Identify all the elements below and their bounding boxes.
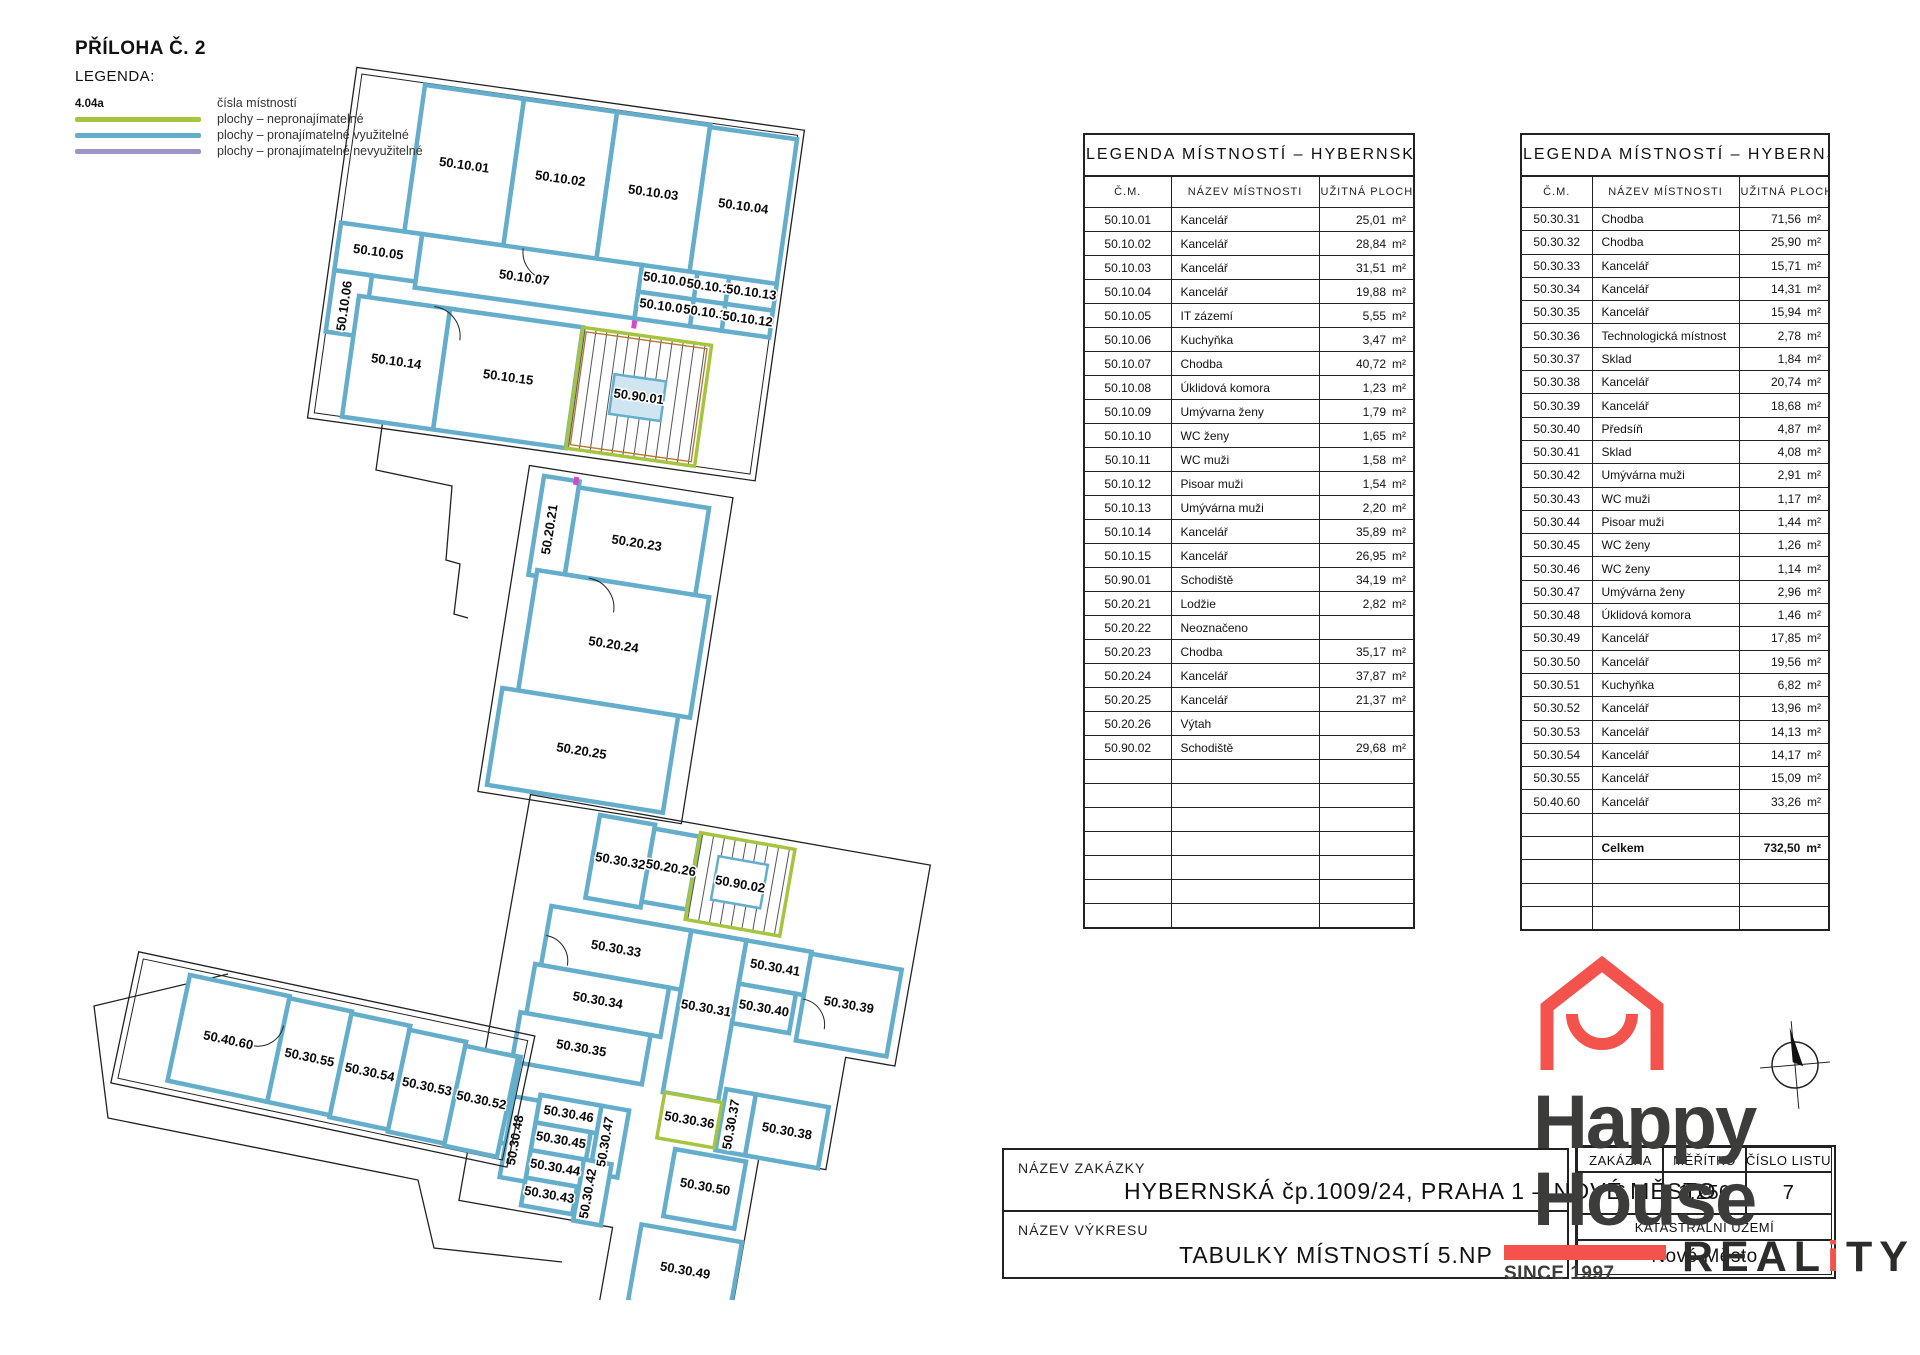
room-number-cell: [1084, 784, 1171, 808]
room-number-cell: 50.30.31: [1521, 208, 1592, 231]
room-area-cell: 14,17 m²: [1739, 743, 1829, 766]
room-area-cell: 19,88 m²: [1319, 280, 1414, 304]
sheet-number-value: 7: [1745, 1171, 1832, 1215]
room-number-cell: 50.30.51: [1521, 673, 1592, 696]
room-number-cell: 50.10.01: [1084, 208, 1171, 232]
room-number-cell: 50.10.11: [1084, 448, 1171, 472]
room-name-cell: Schodiště: [1171, 568, 1319, 592]
room-area-cell: [1739, 883, 1829, 906]
table-row: 50.10.15Kancelář26,95 m²: [1084, 544, 1414, 568]
room-area-cell: 1,84 m²: [1739, 347, 1829, 370]
room-number-cell: [1084, 760, 1171, 784]
table-row: [1521, 906, 1829, 930]
room-number-cell: [1084, 880, 1171, 904]
table-row: 50.30.40Předsíň4,87 m²: [1521, 417, 1829, 440]
room-area-cell: 13,96 m²: [1739, 697, 1829, 720]
room-area-cell: 28,84 m²: [1319, 232, 1414, 256]
room-number-cell: [1084, 832, 1171, 856]
room-area-cell: 71,56 m²: [1739, 208, 1829, 231]
room-area-cell: 35,89 m²: [1319, 520, 1414, 544]
table-row: [1084, 760, 1414, 784]
logo-reality-i: i: [1827, 1233, 1846, 1281]
north-compass: [1750, 1015, 1840, 1115]
room-name-cell: [1592, 906, 1739, 930]
room-number-cell: 50.30.33: [1521, 254, 1592, 277]
room-name-cell: WC muži: [1592, 487, 1739, 510]
table-row: 50.30.38Kancelář20,74 m²: [1521, 371, 1829, 394]
room-name-cell: Úklidová komora: [1592, 604, 1739, 627]
room-name-cell: Umývarna ženy: [1171, 400, 1319, 424]
logo-reality: REALiTY: [1682, 1233, 1915, 1282]
room-number-cell: 50.30.48: [1521, 604, 1592, 627]
room-area-cell: 25,90 m²: [1739, 231, 1829, 254]
room-number-cell: 50.10.03: [1084, 256, 1171, 280]
table-row: [1521, 813, 1829, 836]
room-name-cell: Kancelář: [1592, 720, 1739, 743]
table-row: 50.10.10WC ženy1,65 m²: [1084, 424, 1414, 448]
room-name-cell: Kancelář: [1171, 208, 1319, 232]
room-area-cell: [1319, 832, 1414, 856]
room-number-cell: 50.30.49: [1521, 627, 1592, 650]
room-name-cell: Technologická místnost: [1592, 324, 1739, 347]
table-row: 50.10.03Kancelář31,51 m²: [1084, 256, 1414, 280]
table-row: 50.10.01Kancelář25,01 m²: [1084, 208, 1414, 232]
room-area-cell: 1,65 m²: [1319, 424, 1414, 448]
drawing-name: TABULKY MÍSTNOSTÍ 5.NP: [1179, 1242, 1493, 1269]
room-name-cell: [1171, 856, 1319, 880]
room-area-cell: 6,82 m²: [1739, 673, 1829, 696]
room-area-cell: [1739, 860, 1829, 883]
room-number-cell: 50.30.46: [1521, 557, 1592, 580]
table-row: 50.30.41Sklad4,08 m²: [1521, 440, 1829, 463]
room-number-cell: 50.30.38: [1521, 371, 1592, 394]
room-area-cell: 1,58 m²: [1319, 448, 1414, 472]
room-area-cell: 18,68 m²: [1739, 394, 1829, 417]
room-name-cell: Kancelář: [1592, 627, 1739, 650]
room-name-cell: Kancelář: [1592, 394, 1739, 417]
divider: [1004, 1210, 1567, 1212]
table-row: 50.30.55Kancelář15,09 m²: [1521, 767, 1829, 790]
room-area-cell: [1319, 808, 1414, 832]
room-number-cell: 50.30.36: [1521, 324, 1592, 347]
table-row: 50.30.31Chodba71,56 m²: [1521, 208, 1829, 231]
column-header: NÁZEV MÍSTNOSTI: [1592, 176, 1739, 208]
room-table-2: LEGENDA MÍSTNOSTÍ – HYBERNSKÁČ.M.NÁZEV M…: [1520, 133, 1830, 931]
room-number-cell: 50.10.10: [1084, 424, 1171, 448]
column-header: Č.M.: [1521, 176, 1592, 208]
room-area-cell: 19,56 m²: [1739, 650, 1829, 673]
table-row: 50.30.35Kancelář15,94 m²: [1521, 301, 1829, 324]
room-area-cell: 20,74 m²: [1739, 371, 1829, 394]
room-number-cell: 50.10.15: [1084, 544, 1171, 568]
room-area-cell: 37,87 m²: [1319, 664, 1414, 688]
room-name-cell: Kancelář: [1171, 256, 1319, 280]
table-row: 50.10.02Kancelář28,84 m²: [1084, 232, 1414, 256]
room-name-cell: Kancelář: [1592, 790, 1739, 813]
room-number-cell: 50.10.08: [1084, 376, 1171, 400]
table-row: 50.30.33Kancelář15,71 m²: [1521, 254, 1829, 277]
room-name-cell: Kancelář: [1171, 544, 1319, 568]
room-area-cell: 17,85 m²: [1739, 627, 1829, 650]
room-area-cell: [1319, 760, 1414, 784]
order-name-label: NÁZEV ZAKÁZKY: [1018, 1160, 1145, 1176]
table-row: 50.30.52Kancelář13,96 m²: [1521, 697, 1829, 720]
room-name-cell: Kancelář: [1592, 767, 1739, 790]
room-name-cell: Kancelář: [1171, 232, 1319, 256]
marker: [631, 320, 637, 329]
room-name-cell: [1171, 784, 1319, 808]
room-number-cell: 50.30.41: [1521, 440, 1592, 463]
table-row: 50.30.49Kancelář17,85 m²: [1521, 627, 1829, 650]
room-number-cell: 50.10.02: [1084, 232, 1171, 256]
legend-item-label: plochy – pronajímatelné nevyužitelné: [217, 144, 423, 158]
legend-color-line: [75, 133, 201, 138]
table-row: 50.10.12Pisoar muži1,54 m²: [1084, 472, 1414, 496]
room-area-cell: 33,26 m²: [1739, 790, 1829, 813]
room-table-1: LEGENDA MÍSTNOSTÍ – HYBERNSKÁČ.M.NÁZEV M…: [1083, 133, 1415, 929]
room-name-cell: [1592, 860, 1739, 883]
room-name-cell: Neoznačeno: [1171, 616, 1319, 640]
compass-icon: [1756, 1018, 1833, 1112]
room-name-cell: Chodba: [1592, 231, 1739, 254]
room-name-cell: Kancelář: [1171, 280, 1319, 304]
table-row: 50.30.50Kancelář19,56 m²: [1521, 650, 1829, 673]
room-area-cell: 732,50 m²: [1739, 837, 1829, 860]
table-row: [1084, 784, 1414, 808]
table-title: LEGENDA MÍSTNOSTÍ – HYBERNSKÁ: [1521, 134, 1829, 176]
room-area-cell: 25,01 m²: [1319, 208, 1414, 232]
drawing-name-label: NÁZEV VÝKRESU: [1018, 1222, 1148, 1238]
room-name-cell: [1171, 808, 1319, 832]
legend-item: plochy – nepronajímatelné: [75, 111, 423, 127]
room-name-cell: Schodiště: [1171, 736, 1319, 760]
legend-item-label: plochy – nepronajímatelné: [217, 112, 364, 126]
room-name-cell: Kancelář: [1592, 254, 1739, 277]
table-row: 50.30.44Pisoar muži1,44 m²: [1521, 510, 1829, 533]
table-row: 50.30.48Úklidová komora1,46 m²: [1521, 604, 1829, 627]
room-number-cell: 50.30.47: [1521, 580, 1592, 603]
room-name-cell: Umývárna ženy: [1592, 580, 1739, 603]
legend-sample-number: 4.04a: [75, 96, 201, 110]
room-area-cell: [1739, 906, 1829, 930]
room-name-cell: Kancelář: [1171, 520, 1319, 544]
room-name-cell: Kancelář: [1171, 664, 1319, 688]
table-row: [1084, 856, 1414, 880]
room-number-cell: 50.30.43: [1521, 487, 1592, 510]
table-row: [1084, 904, 1414, 929]
room-name-cell: Kancelář: [1592, 371, 1739, 394]
logo-reality-ty: TY: [1846, 1233, 1915, 1281]
room-area-cell: 5,55 m²: [1319, 304, 1414, 328]
room-area-cell: [1319, 904, 1414, 929]
table-row: 50.90.02Schodiště29,68 m²: [1084, 736, 1414, 760]
room-number-cell: 50.30.50: [1521, 650, 1592, 673]
attachment-title: PŘÍLOHA Č. 2: [75, 38, 423, 60]
room-number-cell: 50.90.01: [1084, 568, 1171, 592]
room-name-cell: WC ženy: [1592, 557, 1739, 580]
room-area-cell: 15,09 m²: [1739, 767, 1829, 790]
room-name-cell: Kancelář: [1171, 688, 1319, 712]
room-area-cell: 1,17 m²: [1739, 487, 1829, 510]
logo-word-happy: Happy: [1533, 1085, 1755, 1161]
room-name-cell: Kancelář: [1592, 743, 1739, 766]
table-row: [1521, 860, 1829, 883]
room-number-cell: 50.10.09: [1084, 400, 1171, 424]
table-row: 50.30.54Kancelář14,17 m²: [1521, 743, 1829, 766]
room-name-cell: Lodžie: [1171, 592, 1319, 616]
room-name-cell: Sklad: [1592, 347, 1739, 370]
room-number-cell: [1084, 808, 1171, 832]
table-row: 50.90.01Schodiště34,19 m²: [1084, 568, 1414, 592]
happy-house-logo-icon: [1535, 950, 1670, 1075]
logo-reality-real: REAL: [1682, 1233, 1827, 1281]
table-row: 50.30.47Umývárna ženy2,96 m²: [1521, 580, 1829, 603]
table-row: 50.20.24Kancelář37,87 m²: [1084, 664, 1414, 688]
room-area-cell: 35,17 m²: [1319, 640, 1414, 664]
room-number-cell: 50.20.22: [1084, 616, 1171, 640]
room-area-cell: 34,19 m²: [1319, 568, 1414, 592]
room-name-cell: Chodba: [1592, 208, 1739, 231]
room-name-cell: WC ženy: [1592, 534, 1739, 557]
room-area-cell: 1,79 m²: [1319, 400, 1414, 424]
room-name-cell: Kancelář: [1592, 650, 1739, 673]
room-area-cell: [1319, 880, 1414, 904]
room-area-cell: [1319, 784, 1414, 808]
room-number-cell: 50.20.24: [1084, 664, 1171, 688]
room-number-cell: 50.90.02: [1084, 736, 1171, 760]
legend-title: LEGENDA:: [75, 68, 423, 85]
table-row: 50.30.45WC ženy1,26 m²: [1521, 534, 1829, 557]
table-row: 50.30.51Kuchyňka6,82 m²: [1521, 673, 1829, 696]
legend: PŘÍLOHA Č. 2 LEGENDA: 4.04ačísla místnos…: [75, 38, 423, 159]
legend-items: 4.04ačísla místnostíplochy – nepronajíma…: [75, 95, 423, 159]
table-row: 50.20.22Neoznačeno: [1084, 616, 1414, 640]
room-number-cell: 50.10.14: [1084, 520, 1171, 544]
room-area-cell: 2,78 m²: [1739, 324, 1829, 347]
room-area-cell: 1,44 m²: [1739, 510, 1829, 533]
room-name-cell: [1592, 813, 1739, 836]
room-number-cell: 50.10.12: [1084, 472, 1171, 496]
legend-color-line: [75, 117, 201, 122]
room-area-cell: 31,51 m²: [1319, 256, 1414, 280]
room-area-cell: 1,46 m²: [1739, 604, 1829, 627]
room-area-cell: 21,37 m²: [1319, 688, 1414, 712]
room-number-cell: [1521, 883, 1592, 906]
room-name-cell: Kancelář: [1592, 277, 1739, 300]
table-row: Celkem732,50 m²: [1521, 837, 1829, 860]
room-number-cell: 50.10.05: [1084, 304, 1171, 328]
table-row: [1084, 832, 1414, 856]
room-name-cell: Umývárna muži: [1592, 464, 1739, 487]
room-number-cell: 50.30.40: [1521, 417, 1592, 440]
room-name-cell: [1171, 880, 1319, 904]
room-number-cell: [1084, 904, 1171, 929]
table-row: 50.10.13Umývárna muži2,20 m²: [1084, 496, 1414, 520]
room-area-cell: 1,26 m²: [1739, 534, 1829, 557]
room-name-cell: Umývárna muži: [1171, 496, 1319, 520]
room-number-cell: 50.20.25: [1084, 688, 1171, 712]
table-row: 50.30.32Chodba25,90 m²: [1521, 231, 1829, 254]
room-number-cell: 50.10.06: [1084, 328, 1171, 352]
room-number-cell: 50.30.37: [1521, 347, 1592, 370]
column-header: NÁZEV MÍSTNOSTI: [1171, 176, 1319, 208]
room-number-cell: [1521, 906, 1592, 930]
room-area-cell: 1,14 m²: [1739, 557, 1829, 580]
room-area-cell: [1319, 616, 1414, 640]
table-row: [1084, 808, 1414, 832]
room-name-cell: Chodba: [1171, 352, 1319, 376]
table-row: [1084, 880, 1414, 904]
table-row: 50.10.08Úklidová komora1,23 m²: [1084, 376, 1414, 400]
room-number-cell: 50.10.04: [1084, 280, 1171, 304]
table-row: 50.10.07Chodba40,72 m²: [1084, 352, 1414, 376]
room-area-cell: 15,71 m²: [1739, 254, 1829, 277]
room-area-cell: [1739, 813, 1829, 836]
room-number-cell: 50.30.42: [1521, 464, 1592, 487]
table-row: 50.10.05IT zázemí5,55 m²: [1084, 304, 1414, 328]
room-number-cell: [1084, 856, 1171, 880]
legend-item-label: plochy – pronajímatelné využitelné: [217, 128, 409, 142]
room-number-cell: 50.30.32: [1521, 231, 1592, 254]
table-row: 50.20.25Kancelář21,37 m²: [1084, 688, 1414, 712]
building-contour: [376, 412, 468, 618]
table-row: 50.10.06Kuchyňka3,47 m²: [1084, 328, 1414, 352]
room-name-cell: [1171, 904, 1319, 929]
table-row: 50.20.26Výtah: [1084, 712, 1414, 736]
room-number-cell: 50.20.26: [1084, 712, 1171, 736]
room-name-cell: [1171, 832, 1319, 856]
table-row: 50.30.34Kancelář14,31 m²: [1521, 277, 1829, 300]
room-name-cell: Sklad: [1592, 440, 1739, 463]
legend-color-line: [75, 149, 201, 154]
room-name-cell: Kuchyňka: [1171, 328, 1319, 352]
room-name-cell: Kancelář: [1592, 697, 1739, 720]
room-area-cell: 2,91 m²: [1739, 464, 1829, 487]
room-name-cell: WC muži: [1171, 448, 1319, 472]
room-area-cell: 40,72 m²: [1319, 352, 1414, 376]
column-header: Č.M.: [1084, 176, 1171, 208]
table-title: LEGENDA MÍSTNOSTÍ – HYBERNSKÁ: [1084, 134, 1414, 176]
drawing-sheet: 50.10.0150.10.0250.10.0350.10.0450.10.05…: [0, 0, 1920, 1355]
room-name-cell: [1171, 760, 1319, 784]
room-number-cell: 50.30.45: [1521, 534, 1592, 557]
room-number-cell: 50.30.54: [1521, 743, 1592, 766]
room-area-cell: 26,95 m²: [1319, 544, 1414, 568]
room-area-cell: 2,20 m²: [1319, 496, 1414, 520]
room-name-cell: Celkem: [1592, 837, 1739, 860]
logo-since: SINCE 1997: [1504, 1263, 1615, 1285]
table-row: 50.10.14Kancelář35,89 m²: [1084, 520, 1414, 544]
logo-red-bar: [1504, 1245, 1666, 1260]
room-area-cell: 15,94 m²: [1739, 301, 1829, 324]
room-number-cell: 50.30.35: [1521, 301, 1592, 324]
room-area-cell: 1,54 m²: [1319, 472, 1414, 496]
room-area-cell: 14,13 m²: [1739, 720, 1829, 743]
room-area-cell: 14,31 m²: [1739, 277, 1829, 300]
room-number-cell: 50.20.21: [1084, 592, 1171, 616]
table-row: 50.30.39Kancelář18,68 m²: [1521, 394, 1829, 417]
room-name-cell: Kuchyňka: [1592, 673, 1739, 696]
room-number-cell: 50.20.23: [1084, 640, 1171, 664]
room-area-cell: 4,87 m²: [1739, 417, 1829, 440]
table-row: 50.30.46WC ženy1,14 m²: [1521, 557, 1829, 580]
room-number-cell: 50.30.55: [1521, 767, 1592, 790]
house-icon: [1547, 964, 1657, 1070]
room-number-cell: 50.30.39: [1521, 394, 1592, 417]
smile-icon: [1572, 1014, 1632, 1044]
table-row: 50.30.53Kancelář14,13 m²: [1521, 720, 1829, 743]
room-number-cell: 50.10.07: [1084, 352, 1171, 376]
room-area-cell: 2,96 m²: [1739, 580, 1829, 603]
column-header: UŽITNÁ PLOCHA: [1739, 176, 1829, 208]
table-row: [1521, 883, 1829, 906]
room-name-cell: IT zázemí: [1171, 304, 1319, 328]
room-number-cell: 50.40.60: [1521, 790, 1592, 813]
table-row: 50.20.21Lodžie2,82 m²: [1084, 592, 1414, 616]
column-header: UŽITNÁ PLOCHA: [1319, 176, 1414, 208]
table-row: 50.30.37Sklad1,84 m²: [1521, 347, 1829, 370]
room-area-cell: 4,08 m²: [1739, 440, 1829, 463]
room-name-cell: Chodba: [1171, 640, 1319, 664]
room-area-cell: [1319, 856, 1414, 880]
room-number-cell: [1521, 860, 1592, 883]
room-number-cell: [1521, 837, 1592, 860]
room-name-cell: Kancelář: [1592, 301, 1739, 324]
room-number-cell: 50.30.44: [1521, 510, 1592, 533]
room-number-cell: 50.30.53: [1521, 720, 1592, 743]
table-row: 50.40.60Kancelář33,26 m²: [1521, 790, 1829, 813]
table-row: 50.30.43WC muži1,17 m²: [1521, 487, 1829, 510]
room-number-cell: [1521, 813, 1592, 836]
sheet-number-label: ČÍSLO LISTU: [1745, 1147, 1832, 1173]
title-block: NÁZEV ZAKÁZKY HYBERNSKÁ čp.1009/24, PRAH…: [1002, 1148, 1569, 1279]
room-name-cell: Pisoar muži: [1592, 510, 1739, 533]
room-number-cell: 50.30.52: [1521, 697, 1592, 720]
room-name-cell: Pisoar muži: [1171, 472, 1319, 496]
room-name-cell: Úklidová komora: [1171, 376, 1319, 400]
room-area-cell: 2,82 m²: [1319, 592, 1414, 616]
room-area-cell: 3,47 m²: [1319, 328, 1414, 352]
room-area-cell: [1319, 712, 1414, 736]
room-name-cell: [1592, 883, 1739, 906]
table-row: 50.30.36Technologická místnost2,78 m²: [1521, 324, 1829, 347]
table-row: 50.30.42Umývárna muži2,91 m²: [1521, 464, 1829, 487]
room-number-cell: 50.30.34: [1521, 277, 1592, 300]
room-area-cell: 1,23 m²: [1319, 376, 1414, 400]
room-name-cell: WC ženy: [1171, 424, 1319, 448]
legend-item-label: čísla místností: [217, 96, 297, 110]
table-row: 50.10.04Kancelář19,88 m²: [1084, 280, 1414, 304]
floor-plan: 50.10.0150.10.0250.10.0350.10.0450.10.05…: [0, 0, 1000, 1300]
logo-word-house: House: [1533, 1162, 1755, 1238]
room-name-cell: Výtah: [1171, 712, 1319, 736]
table-row: 50.10.11WC muži1,58 m²: [1084, 448, 1414, 472]
legend-item: plochy – pronajímatelné nevyužitelné: [75, 143, 423, 159]
legend-item: plochy – pronajímatelné využitelné: [75, 127, 423, 143]
table-row: 50.20.23Chodba35,17 m²: [1084, 640, 1414, 664]
table-row: 50.10.09Umývarna ženy1,79 m²: [1084, 400, 1414, 424]
room-number-cell: 50.10.13: [1084, 496, 1171, 520]
legend-item: 4.04ačísla místností: [75, 95, 423, 111]
room-name-cell: Předsíň: [1592, 417, 1739, 440]
room-area-cell: 29,68 m²: [1319, 736, 1414, 760]
